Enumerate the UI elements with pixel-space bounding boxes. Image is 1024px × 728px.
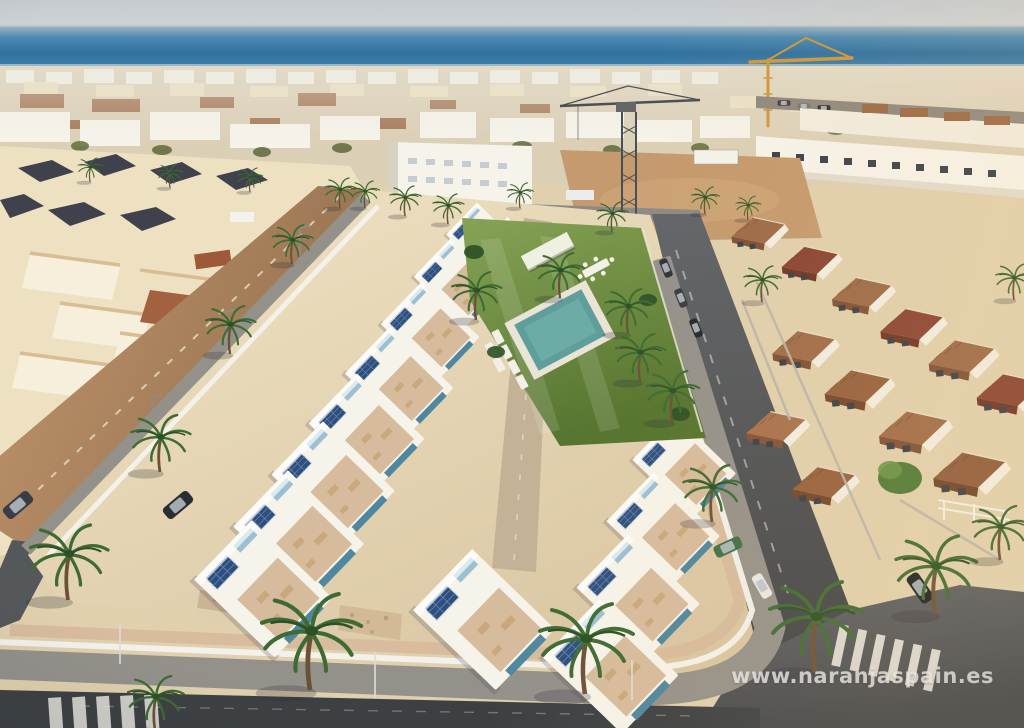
aerial-render-new-build-villas: www.naranjaspain.es <box>0 0 1024 728</box>
townhouse <box>823 365 898 414</box>
townhouse <box>975 369 1024 418</box>
car <box>778 100 791 106</box>
townhouse <box>927 335 1002 384</box>
townhouse <box>877 406 956 458</box>
townhouse <box>931 447 1014 501</box>
townhouse <box>830 274 898 319</box>
car <box>798 103 811 109</box>
aerial-photo-canvas <box>0 0 1024 728</box>
townhouse <box>878 305 950 352</box>
palm-tree <box>742 266 782 306</box>
horizon-line <box>0 25 1024 27</box>
palm-tree <box>994 264 1024 304</box>
watermark: www.naranjaspain.es <box>731 664 994 688</box>
townhouse <box>780 243 845 285</box>
